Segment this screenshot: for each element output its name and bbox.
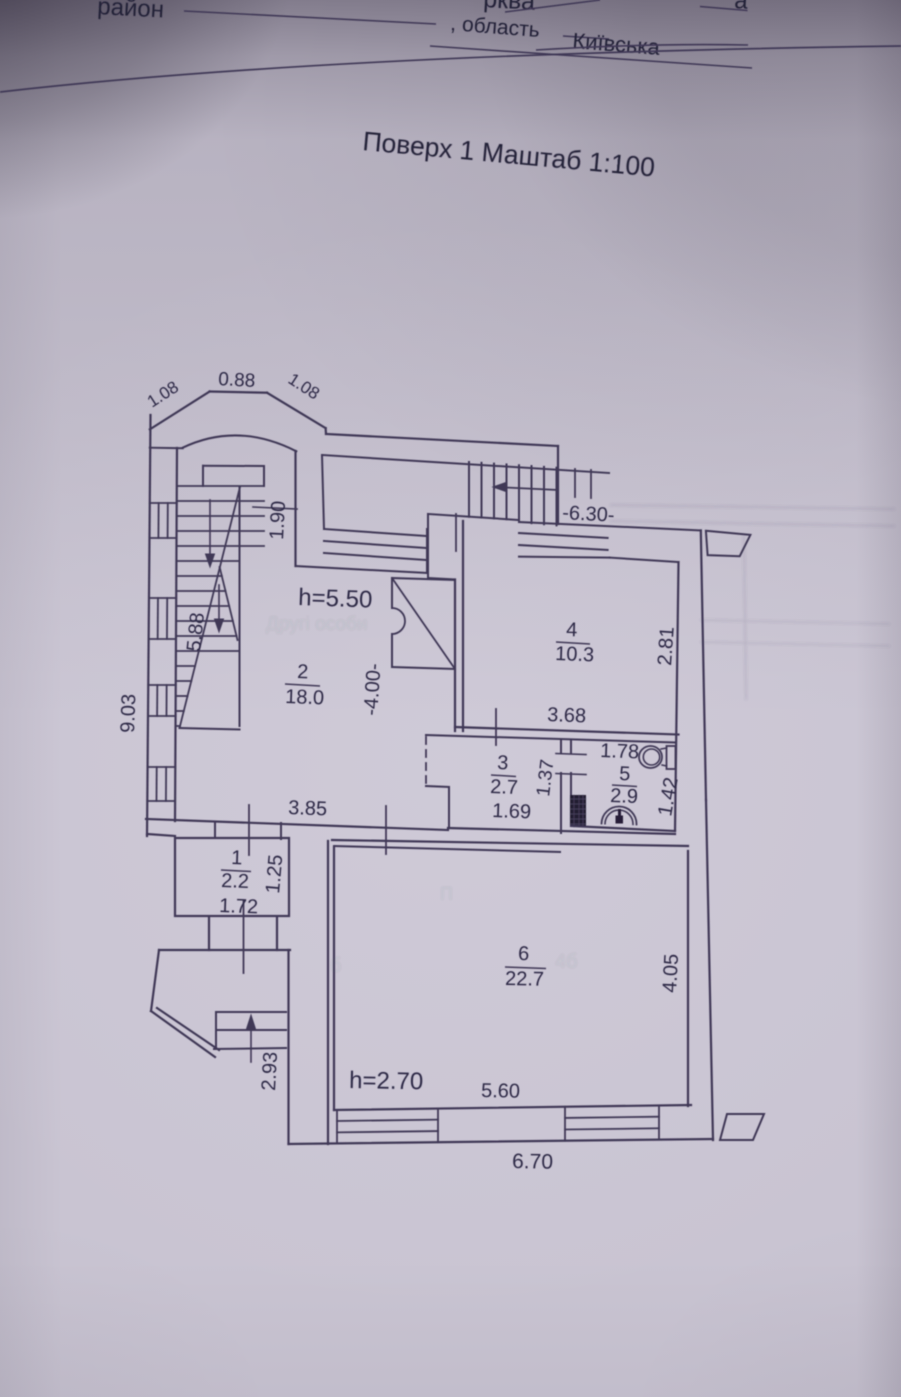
svg-text:б: б xyxy=(330,955,341,977)
svg-text:2.7: 2.7 xyxy=(490,776,519,799)
svg-text:h=2.70: h=2.70 xyxy=(349,1067,424,1095)
svg-text:1.25: 1.25 xyxy=(262,854,287,895)
svg-text:а: а xyxy=(734,0,749,15)
svg-text:1: 1 xyxy=(231,847,243,869)
svg-text:1.42: 1.42 xyxy=(654,776,682,818)
svg-text:1.08: 1.08 xyxy=(144,377,182,411)
svg-text:1.08: 1.08 xyxy=(285,369,323,403)
svg-text:рква: рква xyxy=(483,0,536,16)
svg-text:6: 6 xyxy=(518,943,530,965)
svg-text:1.90: 1.90 xyxy=(266,500,290,540)
svg-text:0.88: 0.88 xyxy=(218,369,256,392)
svg-text:10.3: 10.3 xyxy=(555,643,595,666)
svg-text:1.37: 1.37 xyxy=(533,758,558,797)
svg-text:2.9: 2.9 xyxy=(610,785,639,808)
svg-text:5.60: 5.60 xyxy=(481,1080,520,1103)
svg-text:, область: , область xyxy=(450,12,541,42)
svg-text:Поверх 1 Маштаб 1:100: Поверх 1 Маштаб 1:100 xyxy=(361,126,656,182)
svg-text:П: П xyxy=(440,884,453,904)
svg-text:Другі особи: Другі особи xyxy=(266,614,368,635)
svg-text:3.68: 3.68 xyxy=(547,704,587,727)
svg-text:-4.00-: -4.00- xyxy=(360,663,386,717)
svg-text:3.85: 3.85 xyxy=(288,797,328,820)
svg-text:22.7: 22.7 xyxy=(505,968,544,991)
svg-text:2.2: 2.2 xyxy=(221,870,250,893)
svg-text:-6.30-: -6.30- xyxy=(562,502,615,527)
svg-text:2.81: 2.81 xyxy=(654,626,679,666)
svg-text:район: район xyxy=(97,0,165,23)
svg-text:4: 4 xyxy=(566,619,578,641)
svg-text:6.70: 6.70 xyxy=(512,1150,553,1174)
svg-text:h=5.50: h=5.50 xyxy=(298,584,373,614)
svg-text:2: 2 xyxy=(297,661,309,683)
svg-text:5: 5 xyxy=(619,763,631,785)
svg-text:3: 3 xyxy=(497,752,509,774)
svg-text:9.03: 9.03 xyxy=(117,693,140,733)
svg-text:Київська: Київська xyxy=(572,28,662,60)
svg-text:1.72: 1.72 xyxy=(219,895,259,918)
svg-text:1.69: 1.69 xyxy=(492,800,532,823)
svg-text:1.78: 1.78 xyxy=(600,740,640,763)
svg-text:18.0: 18.0 xyxy=(285,686,325,709)
svg-text:2.93: 2.93 xyxy=(258,1051,282,1091)
svg-text:5.88: 5.88 xyxy=(183,611,209,652)
svg-text:4.05: 4.05 xyxy=(659,953,683,993)
svg-text:4б: 4б xyxy=(555,951,578,973)
